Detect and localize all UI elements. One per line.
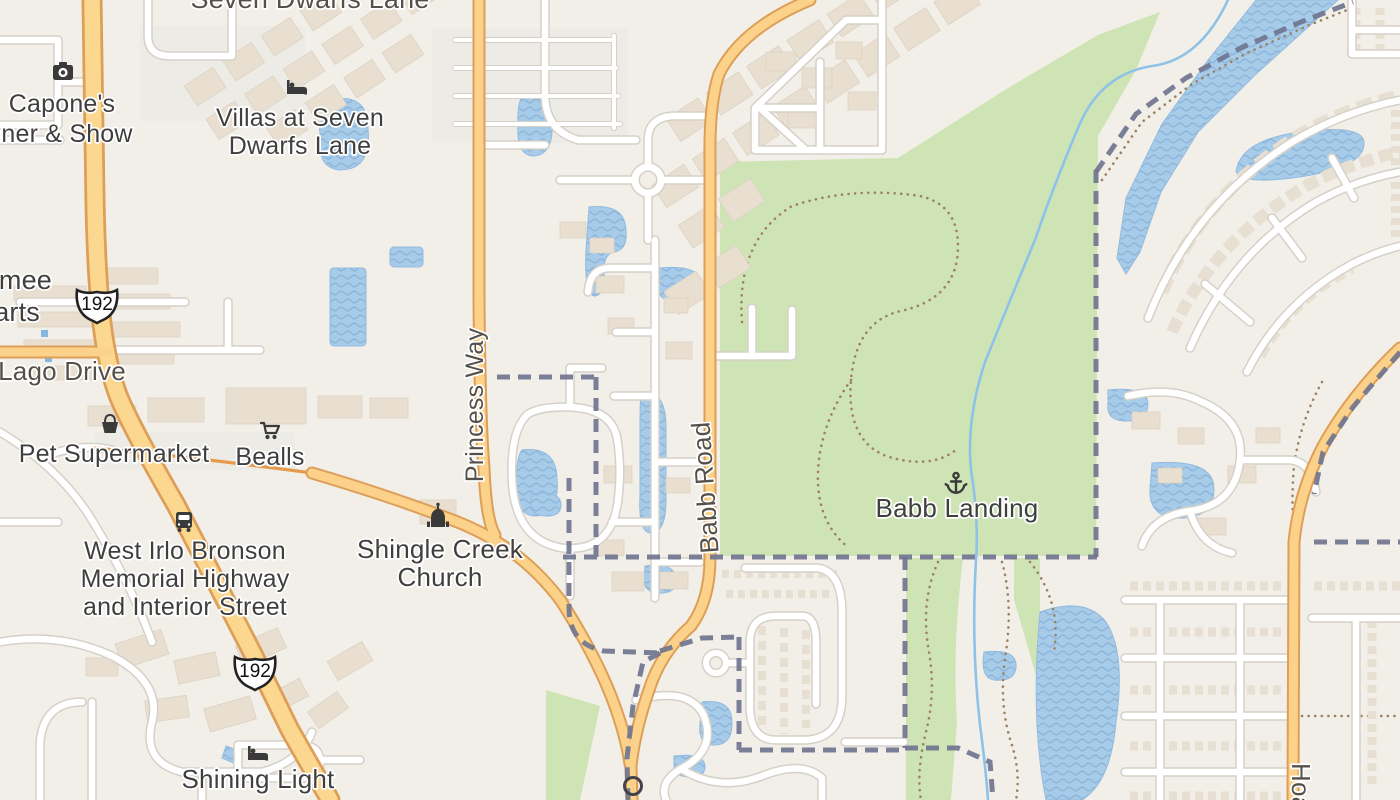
- hoagland-label: Hoagland: [1286, 763, 1316, 800]
- pet-supermarket-label: Pet Supermarket: [19, 440, 210, 468]
- route-shield-number: 192: [81, 294, 113, 315]
- shingle-creek-label: Shingle Creek: [357, 534, 524, 564]
- villas-at-seven-label: Villas at Seven: [216, 104, 384, 132]
- bealls-label: Bealls: [235, 443, 304, 471]
- and-interior-street-label: and Interior Street: [83, 593, 287, 621]
- capone-s-label: Capone's: [9, 90, 115, 118]
- church-label: Church: [397, 562, 482, 592]
- nner-show-label: nner & Show: [0, 120, 133, 148]
- route-shield-number: 192: [239, 661, 271, 682]
- arts-label: arts: [0, 297, 40, 327]
- lago-drive-label: Lago Drive: [0, 356, 126, 386]
- dwarfs-lane-label: Dwarfs Lane: [229, 132, 372, 160]
- map-viewport[interactable]: 192192 Seven Dwarfs LaneCapone'snner & S…: [0, 0, 1400, 800]
- shining-light-label: Shining Light: [182, 764, 336, 794]
- west-irlo-bronson-label: West Irlo Bronson: [84, 537, 286, 565]
- seven-dwarfs-lane-label: Seven Dwarfs Lane: [190, 0, 429, 14]
- umee-label: umee: [0, 265, 52, 295]
- babb-landing-label: Babb Landing: [876, 493, 1039, 523]
- memorial-highway-label: Memorial Highway: [81, 565, 290, 593]
- princess-way-label: Princess Way: [461, 328, 489, 483]
